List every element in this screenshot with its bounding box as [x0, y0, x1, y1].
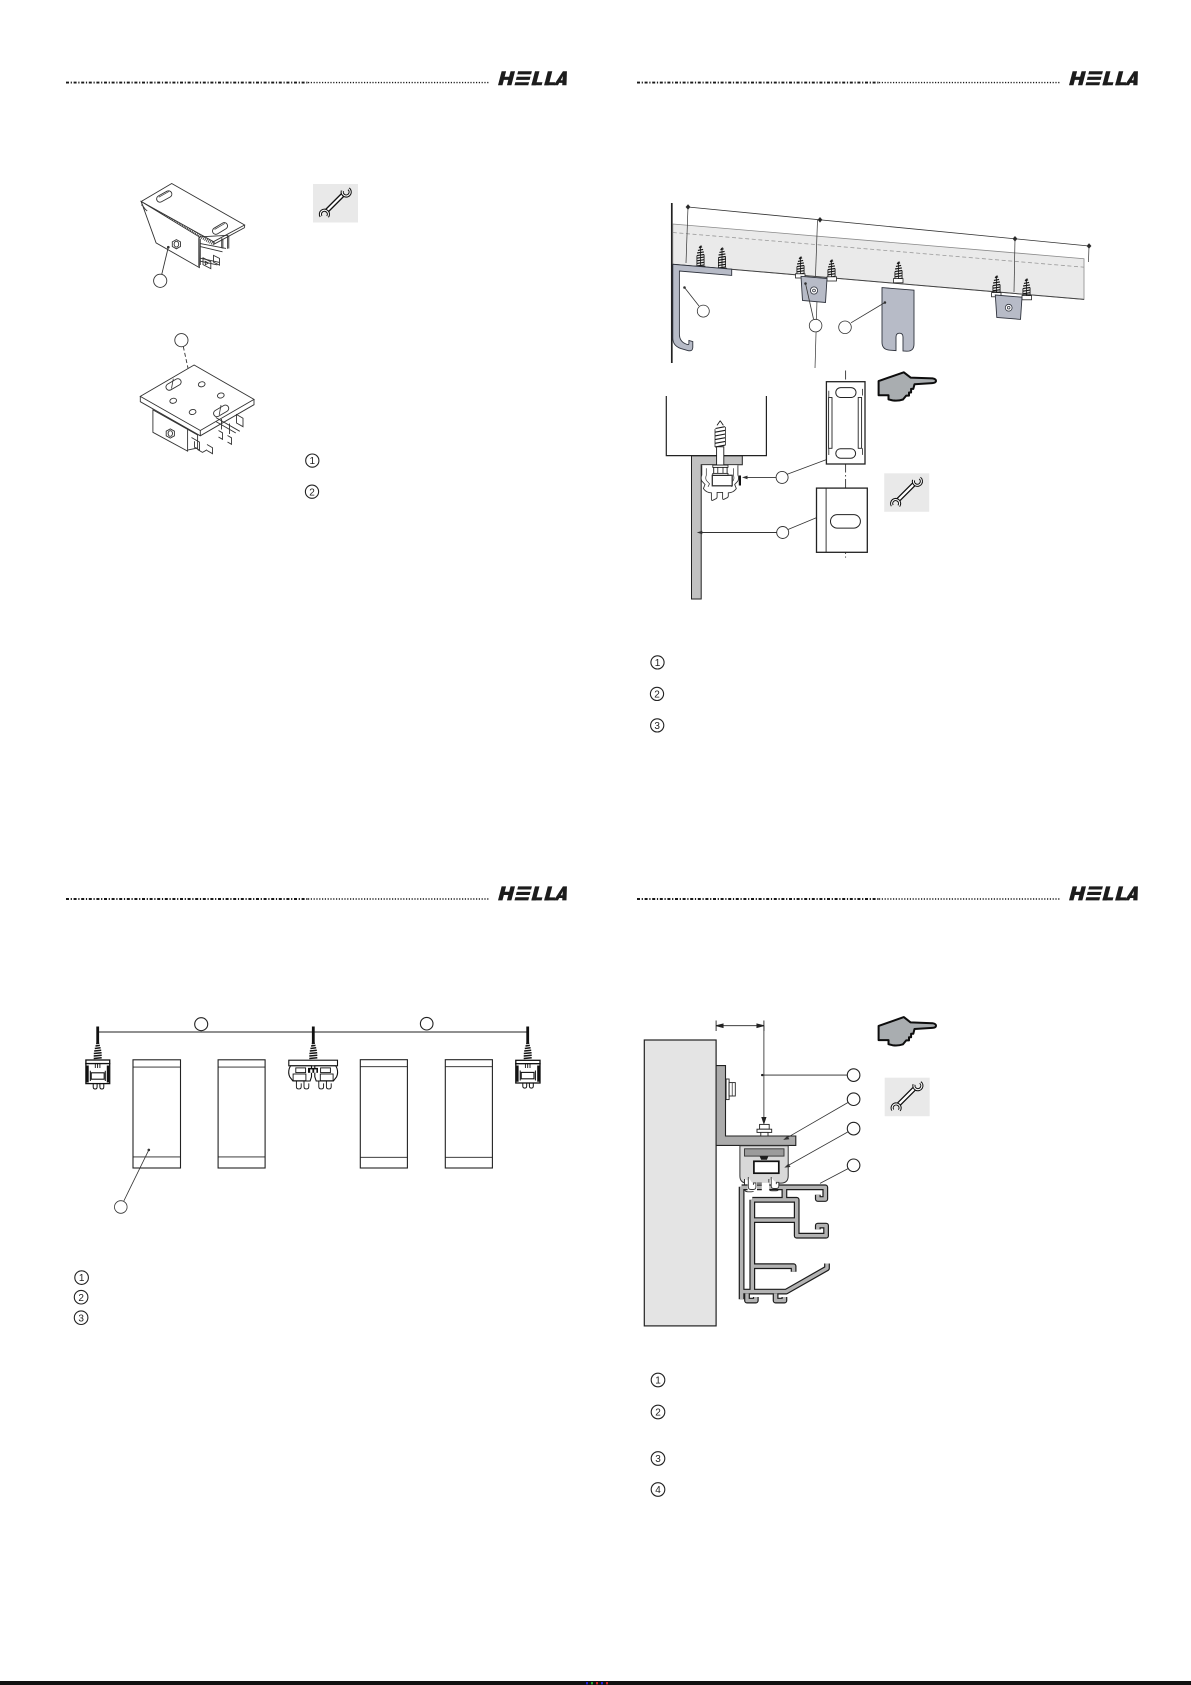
svg-text:3: 3	[78, 1313, 84, 1324]
svg-text:2: 2	[654, 690, 660, 701]
svg-text:3: 3	[654, 721, 660, 732]
svg-text:1: 1	[655, 658, 661, 669]
svg-text:2: 2	[309, 487, 315, 498]
svg-text:3: 3	[655, 1454, 661, 1465]
svg-text:1: 1	[79, 1273, 85, 1284]
svg-text:1: 1	[310, 456, 316, 467]
svg-text:1: 1	[655, 1376, 661, 1387]
svg-text:4: 4	[655, 1485, 661, 1496]
svg-text:2: 2	[655, 1408, 661, 1419]
svg-text:2: 2	[78, 1293, 84, 1304]
